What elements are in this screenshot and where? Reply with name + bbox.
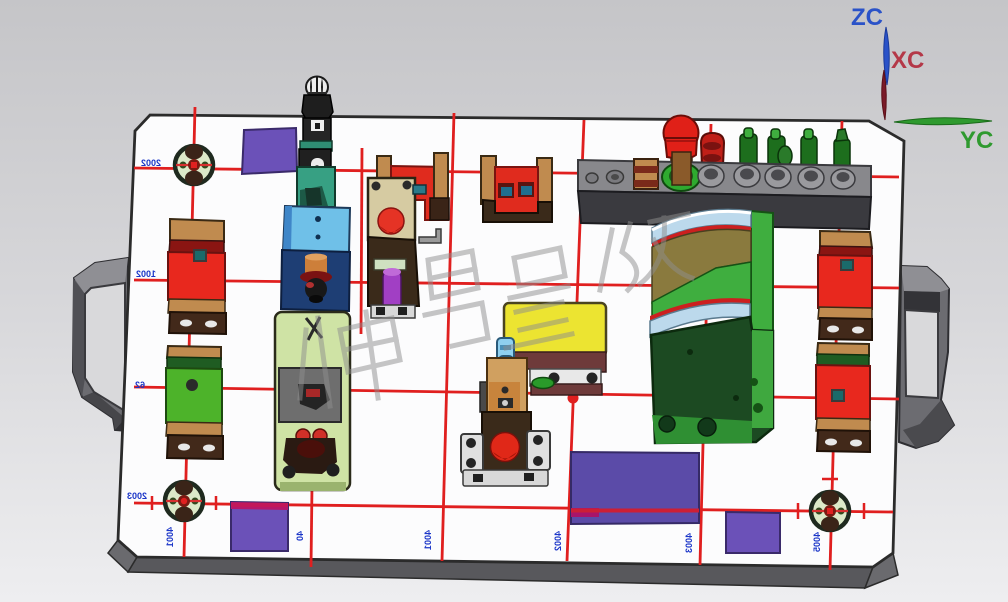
svg-text:62: 62 [135,380,145,390]
svg-text:4003: 4003 [684,533,694,553]
svg-text:2002: 2002 [141,158,161,168]
svg-text:1002: 1002 [136,269,156,279]
svg-text:40: 40 [295,531,305,541]
svg-text:4005: 4005 [812,532,822,552]
svg-text:4001: 4001 [423,530,433,550]
svg-text:YC: YC [960,127,993,154]
svg-text:4002: 4002 [553,531,563,551]
svg-text:4001: 4001 [165,527,175,547]
svg-text:2003: 2003 [127,491,147,501]
svg-text:XC: XC [891,47,924,74]
svg-text:ZC: ZC [851,4,883,31]
